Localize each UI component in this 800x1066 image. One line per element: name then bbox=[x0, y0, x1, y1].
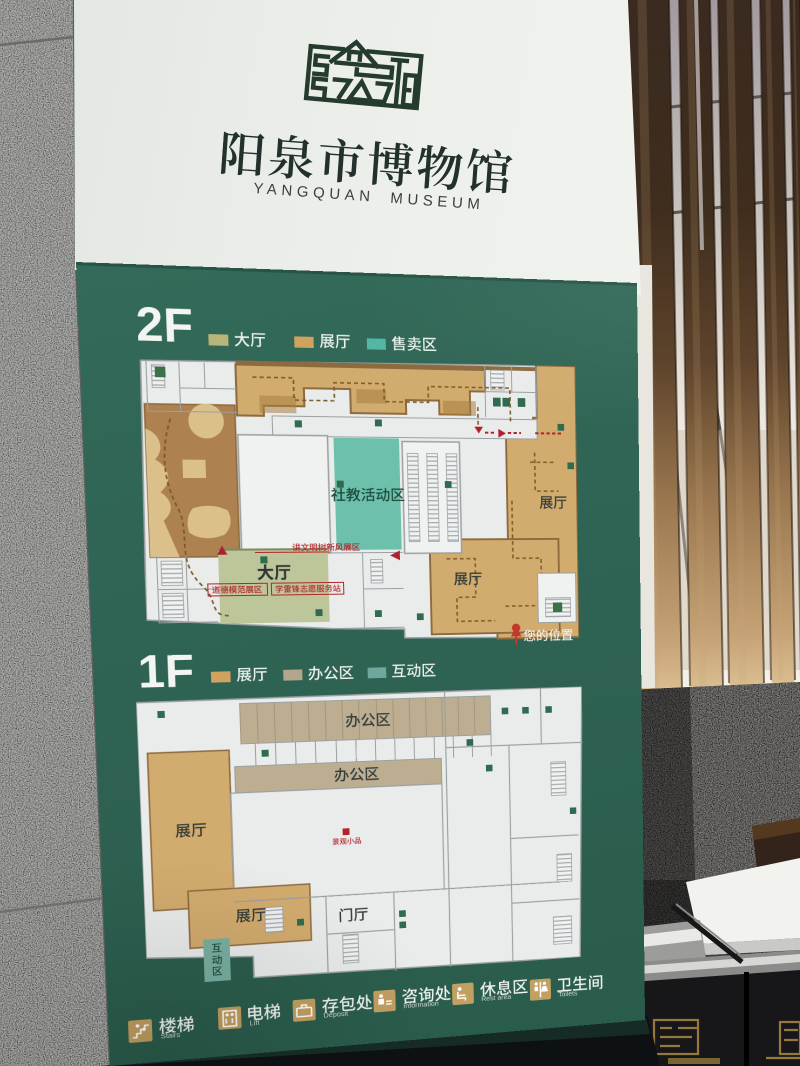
svg-text:Toilets: Toilets bbox=[558, 989, 577, 998]
svg-text:Lift: Lift bbox=[249, 1019, 260, 1028]
svg-text:Stairs: Stairs bbox=[160, 1031, 180, 1041]
svg-text:Rest area: Rest area bbox=[481, 993, 511, 1003]
svg-text:Deposit: Deposit bbox=[323, 1010, 349, 1020]
svg-text:Information: Information bbox=[403, 1000, 439, 1010]
